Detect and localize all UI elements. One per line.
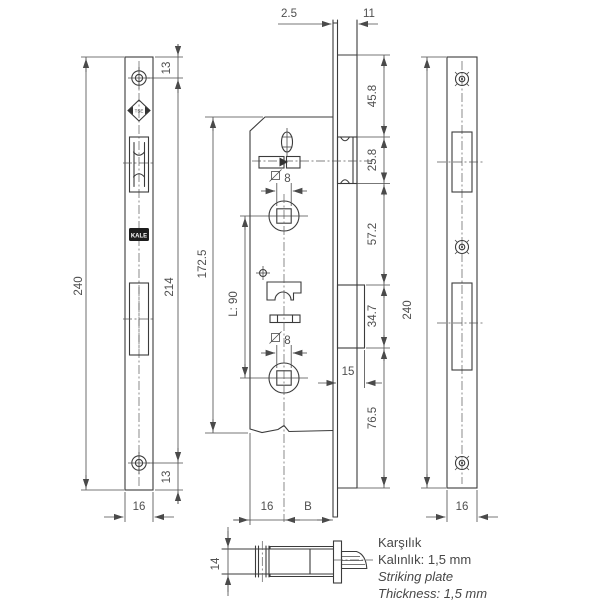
lock-case-break-line — [250, 426, 333, 433]
dim-section-height: 14 — [210, 557, 222, 570]
dim-spindle-top: 8 — [284, 173, 290, 185]
dim-case-height: 172.5 — [197, 250, 209, 279]
dim-right-plate-height: 240 — [402, 300, 414, 319]
dim-left-plate-width: 16 — [133, 501, 146, 513]
case-screw-mark — [256, 266, 270, 280]
dim-bolt-height: 34.7 — [367, 305, 379, 327]
lock-body-view — [240, 20, 374, 522]
dim-follower-spacing: L: 90 — [228, 291, 240, 317]
dim-screw-spacing: 214 — [164, 277, 176, 297]
note-striking-plate: Striking plate — [378, 569, 453, 584]
latch-section-view: 14 — [210, 527, 373, 596]
deadbolt-side — [338, 285, 365, 348]
mortise-lock-drawing: TSE KALE — [0, 0, 600, 600]
left-faceplate-dimensions: 240 13 214 13 16 — [73, 44, 183, 522]
section-spring-bracket — [256, 541, 270, 582]
kale-logo: KALE — [129, 228, 149, 241]
striking-plate-view — [437, 57, 483, 488]
dim-faceplate-thickness: 2.5 — [281, 8, 297, 20]
note-kalinlik: Kalınlık: 1,5 mm — [378, 552, 471, 567]
case-small-slot — [270, 315, 300, 323]
lock-body-dimensions: 2.5 11 172.5 L: 90 8 8 — [197, 8, 390, 525]
dim-screw-top-offset: 13 — [161, 62, 173, 75]
right-deadbolt-slot — [437, 283, 483, 370]
dim-latch-height: 25.8 — [367, 149, 379, 171]
faceplate-edge-strip — [333, 20, 338, 517]
square-section-symbol-bottom — [270, 332, 282, 344]
left-top-screw-hole — [128, 67, 150, 89]
dim-top-to-latch: 45.8 — [367, 85, 379, 107]
tse-logo-text: TSE — [135, 109, 144, 114]
technical-drawing-canvas: TSE KALE — [0, 0, 600, 600]
latch-bolt-side — [338, 137, 358, 184]
lock-front-strip — [338, 20, 358, 488]
dim-case-edge-to-spindle: 16 — [261, 501, 274, 513]
note-karsilik: Karşılık — [378, 535, 422, 550]
latch-spring-bar — [259, 157, 300, 169]
notes-block: Karşılık Kalınlık: 1,5 mm Striking plate… — [378, 535, 487, 600]
note-thickness: Thickness: 1,5 mm — [378, 586, 487, 600]
left-deadbolt-opening — [123, 283, 155, 355]
kale-logo-text: KALE — [131, 234, 147, 240]
striking-plate-dimensions: 240 16 — [402, 57, 498, 522]
latch-reversing-screw — [282, 128, 293, 156]
left-bottom-screw-hole — [128, 452, 150, 474]
dim-right-plate-width: 16 — [456, 501, 469, 513]
left-faceplate-view: TSE KALE — [123, 57, 155, 490]
dim-bolt-throw: 15 — [342, 366, 355, 378]
square-section-symbol-top — [270, 170, 282, 182]
dim-bolt-to-bottom: 76.5 — [367, 407, 379, 429]
dim-latch-to-bolt: 57.2 — [367, 223, 379, 245]
section-faceplate-bar — [334, 541, 342, 583]
right-latch-slot — [437, 132, 483, 192]
dim-latch-protrusion: 11 — [363, 8, 375, 20]
dim-spindle-bottom: 8 — [284, 335, 290, 347]
dim-left-plate-height: 240 — [73, 276, 85, 295]
dim-screw-bottom-offset: 13 — [161, 471, 173, 484]
dim-backset: B — [304, 501, 312, 513]
